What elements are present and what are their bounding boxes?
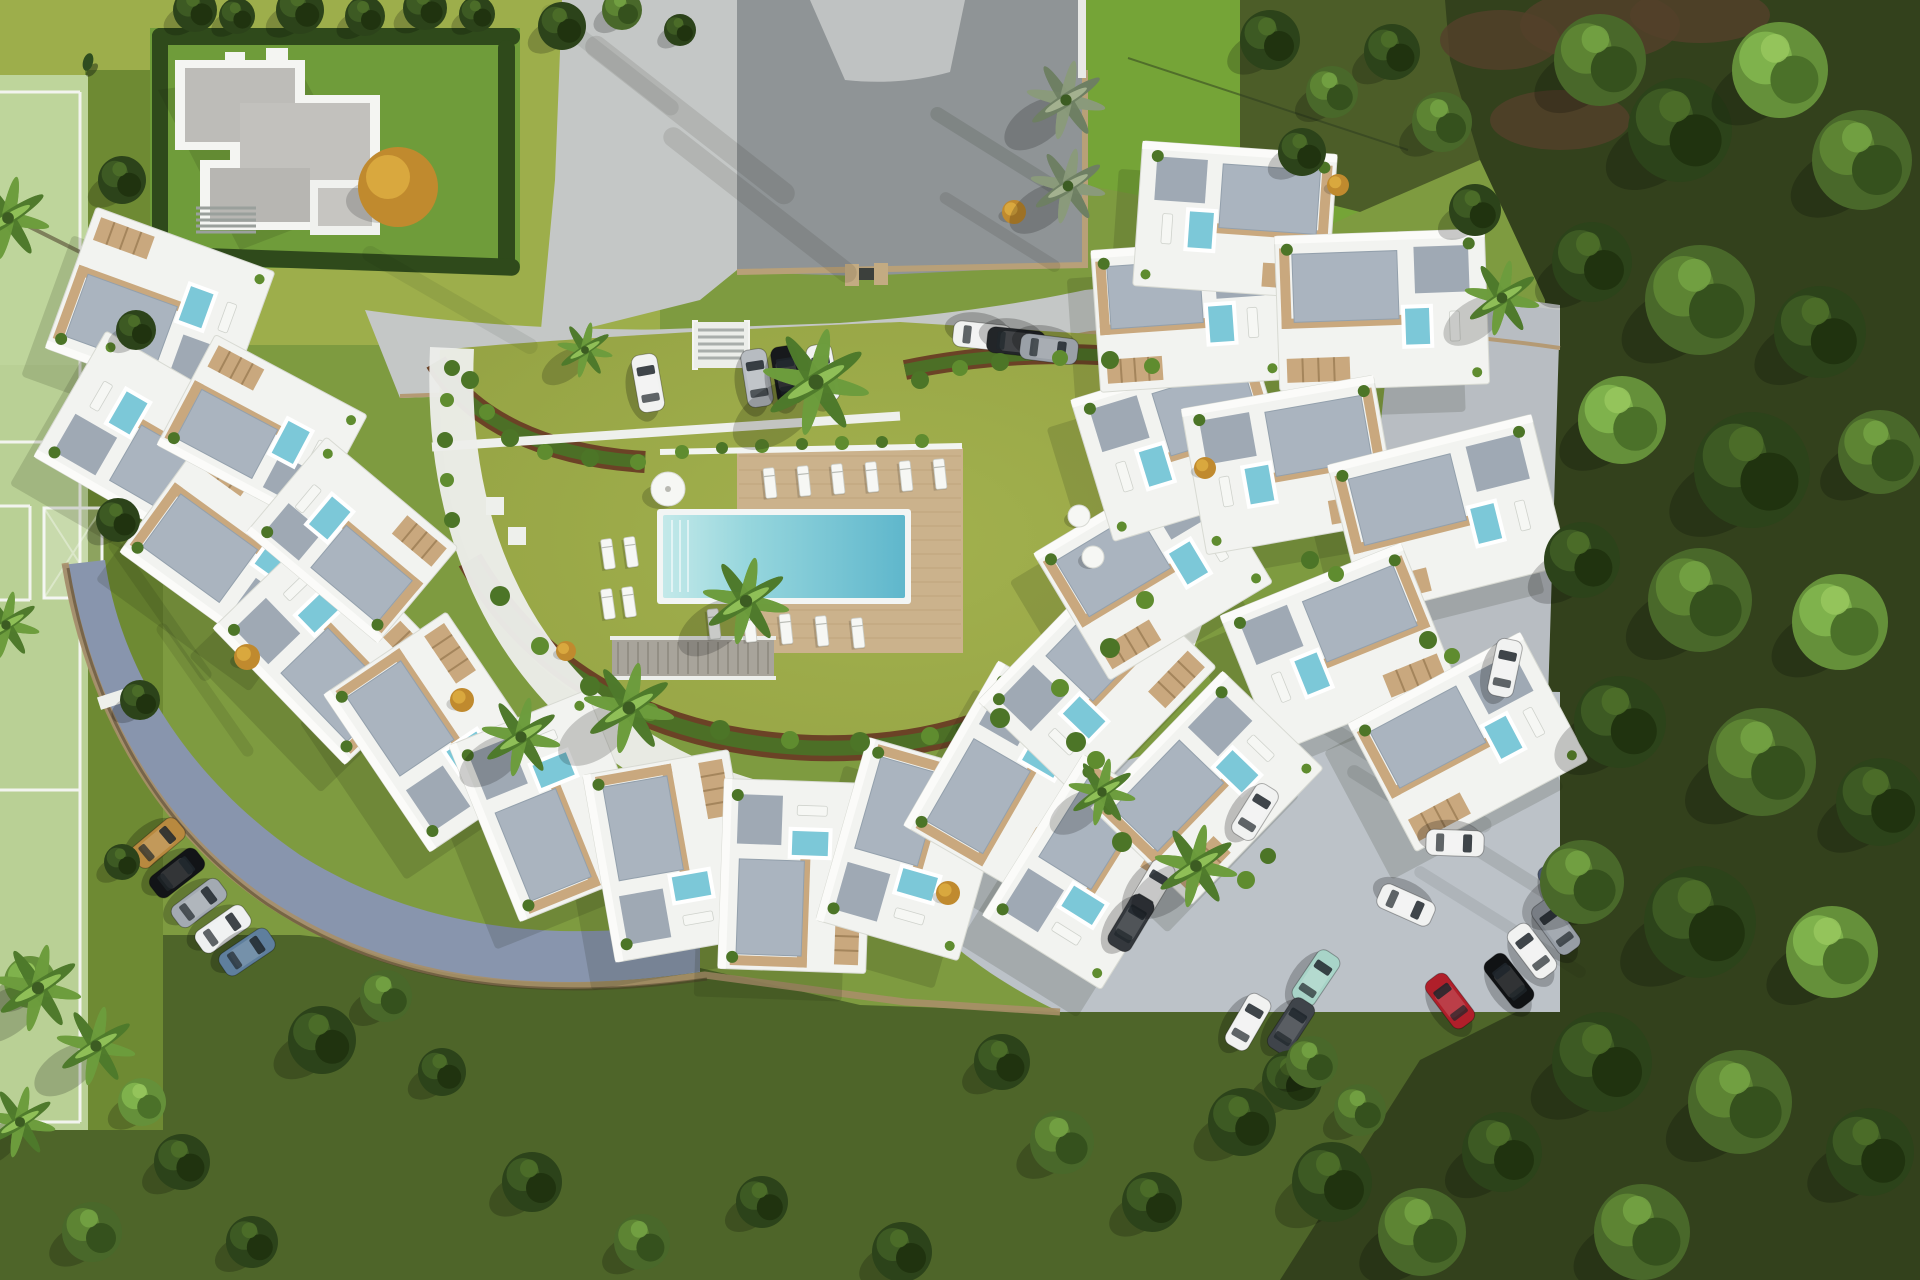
tree-shadow	[1432, 196, 1490, 248]
tree-shadow	[1755, 927, 1858, 1019]
lawn-top-left	[0, 0, 660, 345]
tree-shadow	[719, 1188, 777, 1240]
car-body	[1374, 881, 1438, 928]
car	[1209, 985, 1274, 1061]
tree	[653, 14, 696, 53]
pergola-beam	[1081, 797, 1152, 902]
palm-shadow	[995, 87, 1077, 161]
roof-plant	[573, 699, 586, 712]
bush-shadow	[346, 179, 418, 223]
roof-plant	[1232, 615, 1248, 631]
plunge-pool	[1059, 883, 1108, 928]
car-roof	[180, 886, 217, 921]
tree-shadow	[522, 13, 576, 61]
rooftop-lounger	[289, 559, 315, 589]
building-unit	[1091, 238, 1285, 393]
building-unit	[34, 331, 267, 549]
palm-frond	[779, 332, 852, 432]
shrub	[716, 442, 728, 454]
parapet	[1327, 414, 1533, 473]
forest-soil-patches	[1440, 0, 1770, 150]
palm-frond	[0, 612, 25, 638]
palm-frond	[59, 1019, 133, 1073]
pergola-beam	[344, 693, 406, 754]
building-unit	[45, 207, 275, 413]
plunge-pool	[444, 729, 493, 775]
car-rear-window	[1237, 817, 1257, 833]
gravel-roof	[66, 274, 178, 369]
palm-shadow	[668, 587, 758, 668]
palm-frond	[1488, 260, 1516, 337]
boardwalk	[610, 636, 776, 680]
car-windshield	[1539, 908, 1559, 926]
car-rear-window	[1531, 954, 1550, 971]
palm-frond	[0, 1109, 56, 1135]
palm-frond	[0, 1098, 53, 1147]
deck-planks	[739, 456, 961, 638]
car-shadow	[943, 309, 1010, 350]
buildings	[34, 141, 1588, 990]
palm-crown	[2, 212, 14, 224]
palm-tree	[450, 697, 561, 798]
building-roof	[978, 564, 1216, 803]
villa-stairs	[196, 208, 256, 232]
palm-frond	[761, 362, 870, 401]
tree	[1512, 840, 1624, 943]
roof-plant	[592, 778, 606, 792]
roof-plant	[321, 447, 335, 461]
palm-frond	[1172, 850, 1220, 882]
palm-frond	[705, 571, 786, 631]
tree	[482, 1152, 562, 1225]
rooftop-pergola	[1287, 357, 1351, 383]
car-roof	[1539, 909, 1573, 946]
car-rear-window	[138, 843, 156, 862]
tree-shadow	[653, 21, 689, 53]
shrub	[755, 439, 769, 453]
palm-frond	[566, 324, 604, 376]
roof-plant	[1097, 257, 1110, 270]
tree	[158, 0, 217, 42]
palm-crown	[623, 702, 636, 715]
aerial-render-stage	[0, 0, 1920, 1280]
parapet	[213, 623, 351, 765]
tree	[42, 1202, 122, 1275]
rooftop-lounger	[1247, 307, 1259, 338]
pergola-beam	[317, 616, 406, 708]
tree	[1593, 78, 1732, 205]
tree	[1743, 286, 1866, 398]
planting-bed-soil	[436, 362, 645, 462]
palm-frond	[1476, 263, 1528, 333]
car-shadow	[1092, 889, 1154, 961]
building-unit	[982, 754, 1201, 989]
parapet	[1348, 632, 1524, 731]
gate-post	[845, 264, 859, 286]
tree-shadow	[158, 0, 207, 42]
palm-tree	[25, 1006, 136, 1107]
grass-base	[0, 0, 1920, 1280]
car-rear-window	[1492, 677, 1511, 689]
gravel-roof	[1107, 260, 1204, 329]
building-roof	[816, 737, 1011, 960]
road-curb	[400, 326, 1560, 396]
sun-lounger	[930, 459, 947, 491]
gravel-roof	[855, 757, 944, 866]
palm-frond	[598, 665, 660, 750]
building-roof	[1348, 632, 1588, 852]
roof-plant	[1254, 246, 1267, 259]
palm-frond	[566, 324, 604, 376]
golden-tree-highlight	[938, 883, 951, 896]
gravel-roof	[1113, 740, 1223, 851]
sun-lounger	[740, 612, 757, 644]
palm-frond	[81, 1006, 110, 1087]
palm-frond	[612, 661, 646, 754]
car-shadow	[1417, 819, 1482, 855]
tree-shadow	[1518, 1035, 1630, 1134]
roof-plant	[260, 635, 277, 652]
tree-shadow	[1518, 539, 1603, 615]
roof-plant	[369, 616, 386, 633]
tree-shadow	[1655, 438, 1785, 553]
parapet	[449, 743, 528, 922]
gravel-roof	[603, 776, 684, 881]
shrub	[915, 434, 929, 448]
pergola-beam	[797, 850, 811, 968]
tree-shadow	[1102, 1186, 1169, 1246]
rooftop-pergola	[194, 443, 254, 496]
parapet	[1033, 456, 1200, 561]
gravel-roof	[347, 661, 454, 776]
gravel-roof	[265, 503, 323, 560]
building-roof	[324, 612, 553, 852]
tree-shadow	[1523, 35, 1626, 127]
gravel-roof	[281, 628, 394, 742]
roof-plant	[338, 738, 355, 755]
bush-shadow	[1191, 466, 1211, 478]
building-ground-shadow	[559, 778, 738, 991]
villa-shadow	[158, 70, 370, 250]
roof-plant	[1249, 572, 1263, 586]
court-apron	[430, 322, 900, 470]
tree	[1523, 14, 1646, 126]
shrub	[1301, 551, 1319, 569]
tree	[1317, 1084, 1386, 1148]
car-shadow	[977, 315, 1044, 356]
car-shadow	[1251, 992, 1314, 1064]
palm-frond	[557, 340, 614, 360]
palm-frond	[13, 971, 63, 1005]
pool-deck	[737, 448, 963, 653]
tree-shadow	[0, 968, 45, 1020]
pergola-beam	[595, 764, 673, 787]
sun-lounger	[704, 609, 721, 641]
table-shadow	[1078, 553, 1100, 569]
car-roof	[1433, 983, 1468, 1020]
field-margin	[85, 70, 163, 1130]
tree	[719, 1176, 788, 1240]
palm-frond	[766, 345, 866, 418]
car-body	[127, 814, 188, 871]
parapet	[1181, 375, 1374, 417]
roof-plant	[424, 823, 441, 840]
palm-frond	[1030, 172, 1107, 200]
tree	[1102, 1172, 1182, 1245]
car-shadow	[1215, 778, 1278, 850]
hedge-bottom	[120, 245, 520, 276]
tree	[1700, 22, 1828, 139]
shadow-streak	[1345, 762, 1556, 901]
tree-shadow	[1593, 102, 1710, 205]
building-ground-shadow	[1067, 699, 1300, 933]
hedge-top	[152, 28, 520, 45]
shrub	[710, 720, 730, 740]
shrub	[835, 436, 849, 450]
hedge-right	[498, 40, 515, 268]
palm-frond	[8, 947, 68, 1028]
deck-edge	[660, 446, 962, 452]
golden-tree-highlight	[1329, 176, 1341, 188]
parasol-pole	[665, 486, 671, 492]
tree	[0, 956, 56, 1020]
shrub	[1144, 358, 1160, 374]
building-ground-shadow	[96, 460, 337, 691]
rooftop-lounger	[893, 907, 925, 925]
villa-lawn	[150, 28, 520, 268]
rooftop-lounger	[295, 484, 322, 513]
car-roof	[810, 356, 836, 390]
tree-shadow	[1289, 78, 1347, 130]
rooftop-pergola	[1174, 836, 1231, 894]
car-rear-window	[1385, 889, 1400, 909]
palm-frond	[1029, 73, 1103, 127]
palm-shadow	[0, 204, 20, 282]
roof-plant	[1299, 762, 1313, 776]
building-roof	[583, 750, 762, 963]
shrub	[490, 586, 510, 606]
tree-shadow	[589, 0, 634, 39]
car-windshield	[224, 912, 242, 932]
car-windshield	[745, 360, 764, 372]
palm-frond	[557, 340, 614, 360]
palm-frond	[7, 1086, 33, 1159]
palm-crown	[32, 982, 44, 994]
fence-line	[1128, 58, 1408, 150]
pergola-beam	[76, 265, 190, 315]
parapet	[718, 778, 733, 968]
gravel-roof	[1152, 366, 1262, 456]
palm-frond	[1167, 827, 1224, 905]
palm-tree	[995, 60, 1106, 161]
building-roof	[157, 334, 368, 525]
rooftop-pergola	[1382, 653, 1445, 697]
goal-net	[44, 508, 102, 598]
palm-crown	[1063, 181, 1074, 192]
tree	[1608, 245, 1755, 379]
roof-plant	[1275, 731, 1288, 744]
shrub	[1419, 631, 1437, 649]
gravel-roof	[263, 454, 320, 508]
roof-plant	[1565, 749, 1579, 763]
car	[1414, 970, 1483, 1045]
car-roof	[1387, 889, 1423, 920]
pergola-beam	[1101, 806, 1160, 864]
gravel-roof	[176, 389, 278, 478]
planting-bed-soil	[470, 560, 1152, 748]
car-rear-window	[780, 384, 799, 395]
palm-frond	[1181, 824, 1212, 909]
tree-shadow	[1262, 139, 1316, 187]
plunge-pool	[1403, 306, 1432, 347]
shrub	[581, 449, 599, 467]
rooftop-pergola	[1261, 263, 1321, 291]
golden-tree-highlight	[1196, 459, 1208, 471]
pergola-beam	[1317, 165, 1332, 241]
car-body	[805, 342, 842, 404]
tree	[955, 1034, 1030, 1102]
shadow-streak	[106, 537, 214, 684]
shadow-streak	[659, 123, 860, 287]
palm-crown	[1060, 94, 1071, 105]
roof-plant	[1103, 732, 1117, 746]
building-unit	[1033, 456, 1272, 681]
palm-trees	[0, 60, 1540, 1177]
car-rear-window	[1509, 984, 1528, 1001]
palm-frond	[1054, 148, 1082, 225]
car-windshield	[1463, 834, 1473, 852]
palm-frond	[1079, 761, 1125, 824]
golden-tree	[556, 641, 576, 661]
rooftop-lounger	[683, 911, 714, 926]
tree-shadow	[1008, 1125, 1080, 1189]
tree-shadow	[1242, 1064, 1309, 1124]
car-body	[952, 320, 1012, 352]
building-unit	[978, 564, 1216, 803]
villa-garage	[310, 180, 380, 235]
pergola-beam	[1314, 617, 1430, 672]
car	[1417, 819, 1485, 857]
gravel-roof	[168, 334, 230, 393]
shrub	[461, 371, 479, 389]
palm-crown	[808, 374, 823, 389]
palm-frond	[0, 613, 40, 638]
roof-plant	[1237, 354, 1252, 369]
tree	[343, 970, 412, 1034]
palm-frond	[484, 710, 558, 764]
tree	[589, 0, 642, 39]
roof-plant	[259, 524, 276, 541]
tree	[1392, 92, 1472, 165]
tree-shadow	[102, 1089, 156, 1137]
pergola-beam	[1387, 733, 1498, 799]
trees	[0, 0, 1920, 1280]
building-roof	[1091, 238, 1285, 393]
tree-shadow	[103, 319, 148, 359]
shadow-streak	[154, 621, 256, 759]
tree	[81, 498, 140, 552]
building-roof	[213, 525, 451, 764]
gravel-roof	[1292, 251, 1399, 323]
shrub	[1087, 751, 1105, 769]
pergola-beam	[1100, 317, 1215, 335]
sun-lounger	[848, 618, 865, 650]
rooftop-lounger	[797, 805, 827, 816]
tree-shadow	[447, 4, 487, 40]
palm-shadow	[450, 724, 532, 798]
palm-frond	[56, 1031, 137, 1060]
roof-plant	[913, 814, 929, 830]
building-unit	[903, 661, 1126, 900]
forest-right	[1280, 0, 1920, 1280]
gravel-roof	[1265, 395, 1372, 476]
car-body	[168, 875, 230, 931]
roof-plant	[1080, 764, 1097, 781]
palm-frond	[1033, 160, 1103, 212]
tree	[1265, 1142, 1372, 1240]
roof-plant	[206, 387, 221, 402]
pergola-beam	[1357, 727, 1401, 798]
shrub	[1328, 566, 1344, 582]
gravel-roof	[1089, 395, 1149, 452]
building-unit	[1274, 229, 1489, 391]
plunge-pool	[106, 389, 150, 438]
palm-tree	[1001, 148, 1107, 244]
plunge-pool	[1213, 747, 1261, 795]
parapet	[246, 526, 383, 643]
car-roof	[1439, 832, 1471, 853]
tree-shadow	[955, 1047, 1018, 1103]
tree-shadow	[1317, 1096, 1375, 1148]
pergola-beam	[335, 515, 423, 591]
car-shadow	[179, 895, 251, 960]
car-roof	[965, 324, 998, 347]
palm-frond	[81, 1006, 110, 1087]
palm-frond	[785, 361, 847, 403]
roof-box	[225, 52, 245, 66]
palm-frond	[0, 1108, 41, 1136]
rooftop-lounger	[1051, 921, 1082, 945]
gravel-roof	[1188, 692, 1253, 757]
building-unit	[583, 750, 762, 963]
palm-frond	[705, 571, 786, 631]
gravel-roof	[1149, 476, 1214, 540]
table-shadow	[1064, 512, 1086, 528]
palm-crown	[15, 1117, 25, 1127]
car-body	[1222, 990, 1274, 1053]
roof-plant	[1357, 384, 1371, 398]
car-roof	[1238, 794, 1271, 831]
car-body	[1229, 781, 1282, 844]
palm-frond	[69, 1009, 123, 1083]
building-ground-shadow	[10, 359, 243, 577]
car-body	[216, 925, 279, 979]
car-body	[1535, 858, 1590, 920]
palm-crown	[90, 1040, 101, 1051]
pergola-beam	[1095, 261, 1110, 335]
palm-frond	[1480, 283, 1523, 312]
gravel-roof	[834, 862, 890, 922]
tree	[82, 156, 146, 215]
palm-frond	[761, 362, 870, 401]
rooftop-lounger	[1514, 500, 1531, 532]
shrub	[675, 445, 689, 459]
palm-crown	[581, 346, 589, 354]
building-ground-shadow	[1047, 372, 1272, 569]
pool-steps	[672, 520, 688, 592]
shrub	[1066, 732, 1086, 752]
shrub	[641, 703, 659, 721]
